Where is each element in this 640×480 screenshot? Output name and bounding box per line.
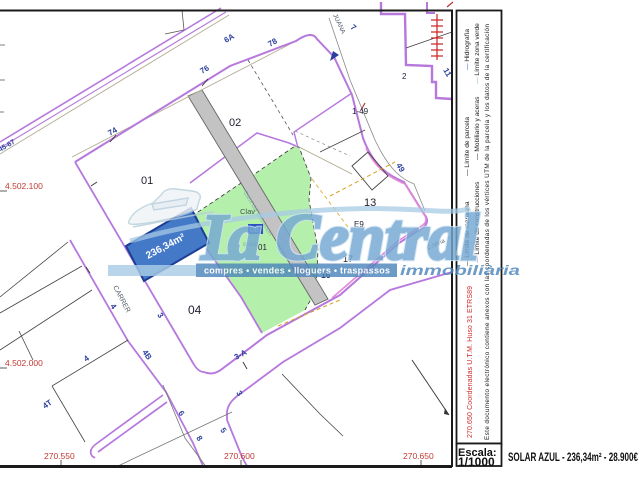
svg-text:270.600: 270.600: [224, 451, 255, 461]
svg-text:02: 02: [229, 117, 241, 129]
svg-text:immobiliària: immobiliària: [400, 263, 521, 278]
svg-text:SOLAR AZUL - 236,34m² - 28.900: SOLAR AZUL - 236,34m² - 28.900€: [508, 450, 638, 464]
svg-text:270.650 Coordenadas U.T.M. Hus: 270.650 Coordenadas U.T.M. Huso 31 ETRS8…: [467, 286, 474, 438]
svg-text:La: La: [200, 201, 261, 274]
svg-text:Este documento electrónico con: Este documento electrónico contiene anex…: [484, 24, 491, 440]
svg-text:2: 2: [402, 72, 407, 81]
svg-text:1/1000: 1/1000: [458, 455, 495, 469]
svg-text:— Mobiliario y aceras: — Mobiliario y aceras: [474, 96, 481, 160]
svg-text:4.502.100: 4.502.100: [5, 181, 43, 191]
svg-text:1-49: 1-49: [352, 107, 369, 116]
svg-text:01: 01: [141, 175, 153, 187]
svg-text:04: 04: [188, 303, 202, 317]
svg-text:270.550: 270.550: [44, 451, 75, 461]
svg-text:4.502.000: 4.502.000: [5, 358, 43, 368]
svg-text:270.650: 270.650: [403, 451, 434, 461]
svg-text:compres • vendes • lloguers •: compres • vendes • lloguers • traspassos: [204, 266, 390, 276]
svg-text:— Límite zona verde: — Límite zona verde: [474, 23, 481, 84]
svg-text:— Hidrografía: — Hidrografía: [464, 29, 471, 70]
svg-text:— Límite de parcela: — Límite de parcela: [464, 117, 471, 176]
